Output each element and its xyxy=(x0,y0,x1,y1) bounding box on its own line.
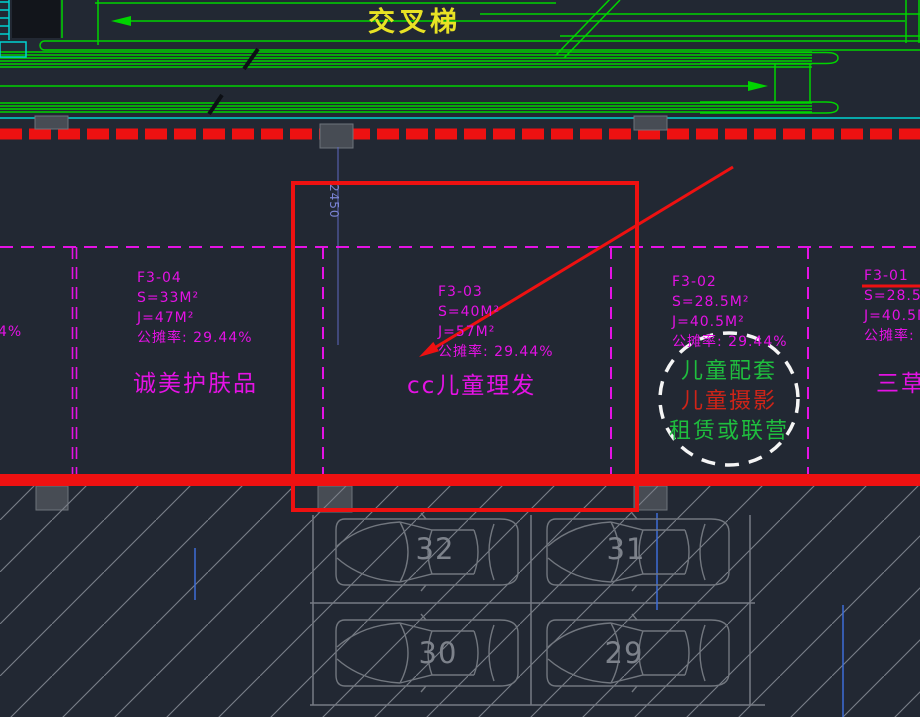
unit-area: S=33M² xyxy=(137,288,253,308)
unit-share-rate: 公摊率: 29.44% xyxy=(438,342,554,362)
left-partial-share-text: 4% xyxy=(0,322,22,342)
unit-inner-area: J=57M² xyxy=(438,322,554,342)
unit-info-f3-03: F3-03 S=40M² J=57M² 公摊率: 29.44% xyxy=(438,282,554,362)
unit-inner-area: J=47M² xyxy=(137,308,253,328)
parking-space-number: 32 xyxy=(416,532,455,566)
unit-inner-area: J=40.5M² xyxy=(672,312,788,332)
unit-info-f3-01: F3-01 S=28.5M² J=40.5M² 公摊率: xyxy=(864,266,920,346)
store-name-f3-04: 诚美护肤品 xyxy=(133,364,258,398)
unit-inner-area: J=40.5M² xyxy=(864,306,920,326)
unit-id: F3-01 xyxy=(864,266,920,286)
note-circle-line-3: 租赁或联营 xyxy=(669,413,789,445)
stair-shaft xyxy=(12,0,60,38)
lower-wall-band xyxy=(0,474,920,486)
unit-area: S=40M² xyxy=(438,302,554,322)
store-name-f3-03: cc儿童理发 xyxy=(407,366,536,400)
parking-space-number: 29 xyxy=(605,636,644,670)
dimension-text: 2450 xyxy=(327,184,341,219)
unit-area: S=28.5M² xyxy=(672,292,788,312)
unit-share-rate: 公摊率: 29.44% xyxy=(137,328,253,348)
note-circle-line-1: 儿童配套 xyxy=(681,353,777,385)
store-name-f3-01: 三草 xyxy=(876,364,920,398)
escalator-title: 交叉梯 xyxy=(368,0,461,39)
unit-id: F3-03 xyxy=(438,282,554,302)
unit-area: S=28.5M² xyxy=(864,286,920,306)
unit-share-rate: 公摊率: xyxy=(864,326,920,346)
note-circle-line-2: 儿童摄影 xyxy=(681,383,777,415)
structural-columns xyxy=(35,116,667,512)
parking-space-number: 31 xyxy=(607,532,646,566)
unit-info-f3-04: F3-04 S=33M² J=47M² 公摊率: 29.44% xyxy=(137,268,253,348)
parking-space-number: 30 xyxy=(419,636,458,670)
unit-share-rate: 公摊率: 29.44% xyxy=(672,332,788,352)
cad-viewport[interactable]: 交叉梯 2450 F3-04 S=33M² J=47M² 公摊率: 29.44%… xyxy=(0,0,920,717)
parking-hatch xyxy=(0,486,920,717)
unit-id: F3-04 xyxy=(137,268,253,288)
unit-info-f3-02: F3-02 S=28.5M² J=40.5M² 公摊率: 29.44% xyxy=(672,272,788,352)
unit-id: F3-02 xyxy=(672,272,788,292)
